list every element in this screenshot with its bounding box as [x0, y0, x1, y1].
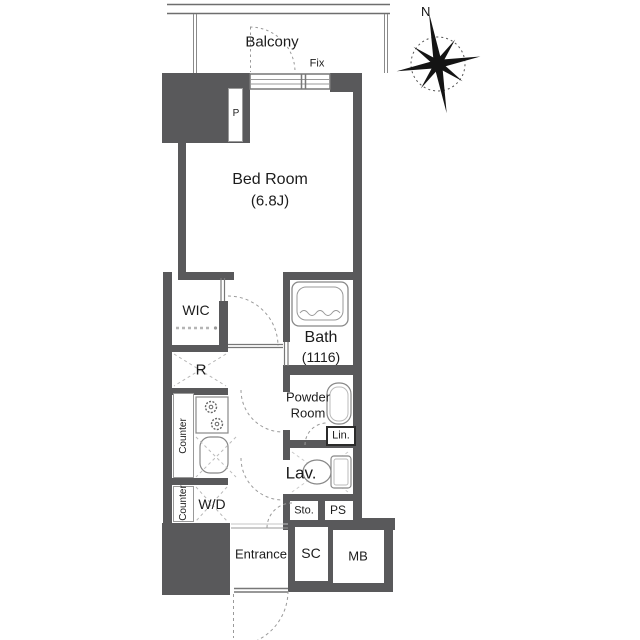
refrigerator-space-label: R — [196, 363, 207, 378]
bedroom-size-label: (6.8J) — [251, 194, 289, 209]
floor-plan-linework: N — [0, 0, 640, 640]
shoe-closet-label: SC — [301, 546, 320, 560]
bath-size-label: (1116) — [302, 350, 340, 364]
bath-name-label: Bath — [305, 330, 338, 346]
wic-hanger-pipe — [176, 326, 217, 329]
floor-plan-canvas: N Balcony Fix P Bed Room (6.8J) WIC Bath… — [0, 0, 640, 640]
bedroom-hall-door — [228, 296, 283, 348]
entrance-step-line — [231, 524, 288, 528]
compass-north-label: N — [421, 4, 430, 19]
lavatory-label: Lav. — [286, 465, 317, 482]
storage-label: Sto. — [294, 506, 314, 517]
entrance-door — [233, 589, 288, 640]
bedroom-name-label: Bed Room — [232, 172, 308, 188]
fix-window-label: Fix — [310, 59, 325, 70]
counter-upper-label: Counter — [179, 418, 189, 454]
stove-icon — [196, 397, 228, 433]
lavatory-door-arc — [241, 458, 283, 500]
compass-rose: N — [388, 4, 489, 121]
linen-door-arc — [305, 423, 327, 445]
powder-room-label-line2: Room — [291, 407, 326, 420]
pipe-shaft-label: P — [233, 109, 240, 119]
kitchen-sink-icon — [196, 437, 236, 477]
wic-label: WIC — [182, 303, 209, 317]
bathtub-icon — [292, 282, 348, 326]
entrance-label: Entrance — [235, 548, 287, 561]
meter-box-label: MB — [348, 550, 368, 563]
powder-room-door-arc — [241, 390, 283, 432]
washer-dryer-label: W/D — [198, 497, 225, 511]
bedroom-window-band — [250, 74, 330, 89]
counter-lower-label: Counter — [179, 485, 189, 521]
balcony-label: Balcony — [245, 35, 298, 50]
pipe-space-label: PS — [330, 504, 346, 516]
wic-door-leaf — [221, 278, 225, 301]
washbasin-icon — [327, 383, 351, 424]
bath-sliding-door — [285, 342, 289, 366]
linen-cabinet-label: Lin. — [332, 431, 350, 442]
powder-room-label-line1: Powder — [286, 391, 330, 404]
